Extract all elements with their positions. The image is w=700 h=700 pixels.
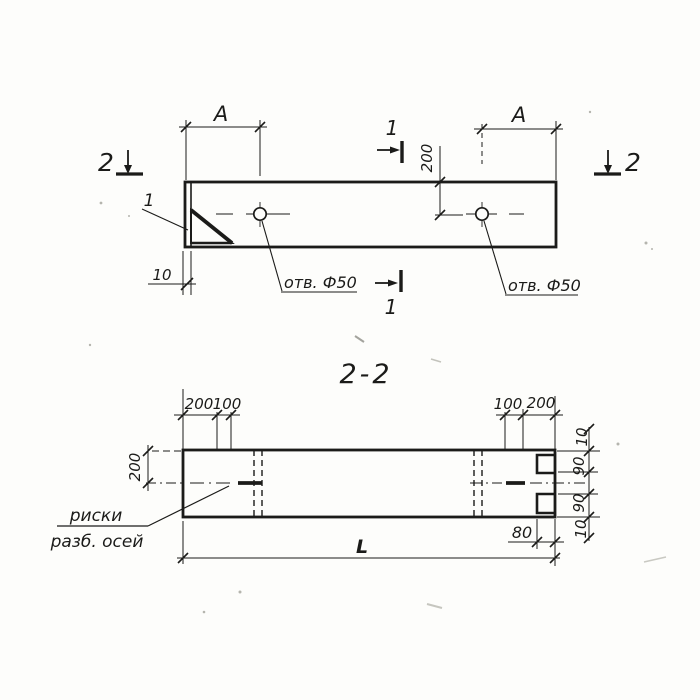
plan-view	[116, 120, 621, 295]
dim-label-tl-100: 100	[213, 395, 242, 413]
drawing-texts: A A 1 1 2 2 200 10 1 отв. Ф50 отв. Ф50 2…	[50, 102, 641, 558]
axis-note-line2: разб. осей	[50, 532, 144, 552]
dim-height-200	[143, 445, 182, 491]
section-mark-2-right	[594, 150, 621, 174]
section-label-2-right: 2	[625, 148, 641, 177]
gusset-leader-line	[142, 209, 188, 230]
hole-note-right: отв. Ф50	[508, 276, 581, 295]
notches	[537, 455, 555, 513]
dim-label-right-90-top: 90	[570, 456, 588, 475]
dim-label-tr-200: 200	[527, 394, 556, 412]
dim-label-right-90-bottom: 90	[570, 493, 588, 512]
dim-label-tl-200: 200	[185, 395, 214, 413]
section-label-1-top: 1	[386, 116, 399, 140]
dim-length-l	[177, 521, 560, 564]
dim-label-height-200: 200	[126, 453, 144, 482]
plan-hole-right	[466, 202, 497, 227]
dim-a-right	[474, 121, 563, 180]
plan-gusset-triangle	[191, 210, 232, 243]
section-mark-1-top	[377, 141, 402, 163]
dim-label-80: 80	[512, 523, 532, 542]
dim-label-a-right: A	[510, 103, 526, 127]
section-mark-1-bottom	[375, 270, 401, 292]
dim-label-right-10-bottom: 10	[572, 519, 590, 538]
dim-label-right-10-top: 10	[573, 427, 591, 446]
dim-label-10-plan: 10	[152, 266, 171, 284]
axis-note-line1: риски	[69, 506, 123, 526]
drawing-svg: A A 1 1 2 2 200 10 1 отв. Ф50 отв. Ф50 2…	[0, 0, 700, 700]
hole-note-left: отв. Ф50	[284, 273, 357, 292]
section-mark-2-left	[116, 150, 143, 174]
plan-beam-outline	[185, 182, 556, 247]
section-label-2-left: 2	[98, 148, 114, 177]
dim-a-left	[179, 120, 267, 180]
section-title: 2-2	[339, 359, 392, 390]
engineering-drawing-sheet: A A 1 1 2 2 200 10 1 отв. Ф50 отв. Ф50 2…	[0, 0, 700, 700]
dim-label-length: L	[356, 536, 368, 558]
dim-label-tr-100: 100	[494, 395, 523, 413]
section-label-1-bottom: 1	[385, 295, 398, 319]
dim-label-a-left: A	[212, 102, 228, 126]
plan-hole-left	[246, 202, 290, 227]
dim-label-200-plan: 200	[418, 144, 436, 173]
gusset-detail-label: 1	[144, 191, 155, 211]
